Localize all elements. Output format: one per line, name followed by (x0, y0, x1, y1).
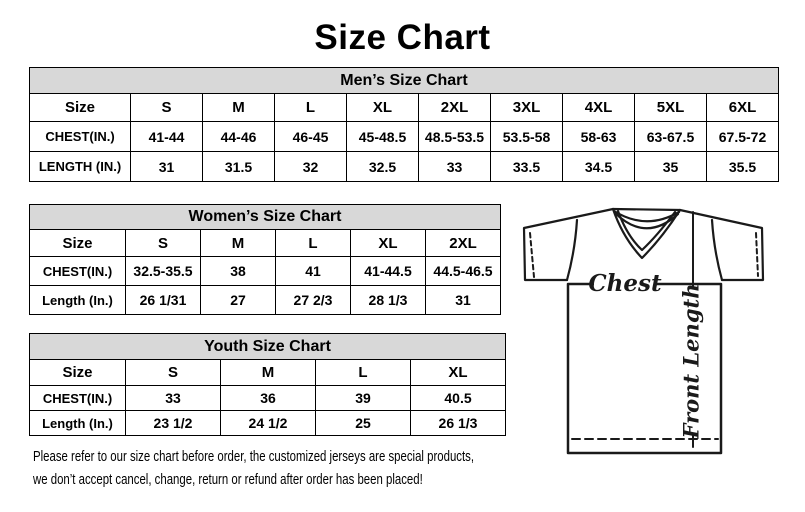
size-value: 27 (201, 286, 276, 315)
page-title: Size Chart (0, 18, 805, 58)
size-value: 53.5-58 (491, 122, 563, 152)
row-label: LENGTH (IN.) (30, 152, 131, 182)
size-value: 31 (131, 152, 203, 182)
column-header: Size (30, 94, 131, 122)
size-value: 40.5 (411, 386, 506, 411)
size-value: 36 (221, 386, 316, 411)
column-header: L (316, 360, 411, 386)
tshirt-measurement-diagram: Chest Front Length (511, 196, 803, 461)
row-label: CHEST(IN.) (30, 386, 126, 411)
size-value: 33 (419, 152, 491, 182)
row-label: Length (In.) (30, 286, 126, 315)
size-value: 58-63 (563, 122, 635, 152)
size-value: 41-44 (131, 122, 203, 152)
column-header: 4XL (563, 94, 635, 122)
size-chart-page: Size Chart Men’s Size ChartSizeSMLXL2XL3… (0, 0, 805, 512)
column-header: XL (411, 360, 506, 386)
front-length-label: Front Length (679, 284, 704, 440)
size-value: 32.5 (347, 152, 419, 182)
size-value: 24 1/2 (221, 411, 316, 436)
right-underarm-seam (712, 220, 722, 280)
column-header: L (276, 230, 351, 257)
size-value: 34.5 (563, 152, 635, 182)
row-label: CHEST(IN.) (30, 257, 126, 286)
size-value: 48.5-53.5 (419, 122, 491, 152)
size-value: 26 1/3 (411, 411, 506, 436)
right-cuff-stitch-dash (756, 233, 758, 276)
size-value: 35 (635, 152, 707, 182)
size-value: 27 2/3 (276, 286, 351, 315)
size-value: 44.5-46.5 (426, 257, 501, 286)
row-label: Length (In.) (30, 411, 126, 436)
column-header: XL (351, 230, 426, 257)
table-title: Youth Size Chart (30, 334, 506, 360)
size-value: 67.5-72 (707, 122, 779, 152)
table-title: Men’s Size Chart (30, 68, 779, 94)
column-header: Size (30, 230, 126, 257)
youth-size-table: Youth Size ChartSizeSMLXLCHEST(IN.)33363… (29, 333, 506, 436)
size-value: 45-48.5 (347, 122, 419, 152)
size-value: 41-44.5 (351, 257, 426, 286)
size-value: 39 (316, 386, 411, 411)
column-header: 5XL (635, 94, 707, 122)
column-header: M (221, 360, 316, 386)
size-value: 35.5 (707, 152, 779, 182)
mens-size-table: Men’s Size ChartSizeSMLXL2XL3XL4XL5XL6XL… (29, 67, 779, 182)
size-value: 41 (276, 257, 351, 286)
column-header: 2XL (419, 94, 491, 122)
disclaimer-line-1: Please refer to our size chart before or… (33, 445, 474, 468)
column-header: S (131, 94, 203, 122)
size-value: 33.5 (491, 152, 563, 182)
disclaimer-line-2: we don’t accept cancel, change, return o… (33, 468, 474, 491)
column-header: XL (347, 94, 419, 122)
column-header: 2XL (426, 230, 501, 257)
size-value: 28 1/3 (351, 286, 426, 315)
size-value: 31.5 (203, 152, 275, 182)
womens-size-table: Women’s Size ChartSizeSMLXL2XLCHEST(IN.)… (29, 204, 501, 315)
column-header: M (203, 94, 275, 122)
column-header: Size (30, 360, 126, 386)
size-value: 26 1/31 (126, 286, 201, 315)
disclaimer: Please refer to our size chart before or… (33, 445, 613, 491)
size-value: 31 (426, 286, 501, 315)
column-header: S (126, 360, 221, 386)
column-header: S (126, 230, 201, 257)
size-value: 63-67.5 (635, 122, 707, 152)
column-header: M (201, 230, 276, 257)
left-underarm-seam (567, 220, 577, 280)
column-header: 6XL (707, 94, 779, 122)
size-value: 32.5-35.5 (126, 257, 201, 286)
size-value: 23 1/2 (126, 411, 221, 436)
size-value: 25 (316, 411, 411, 436)
size-value: 46-45 (275, 122, 347, 152)
chest-label: Chest (588, 270, 662, 297)
size-value: 44-46 (203, 122, 275, 152)
size-value: 33 (126, 386, 221, 411)
left-cuff-stitch-dash (530, 233, 534, 277)
size-value: 32 (275, 152, 347, 182)
column-header: L (275, 94, 347, 122)
collar-top-line (613, 209, 680, 210)
table-title: Women’s Size Chart (30, 205, 501, 230)
row-label: CHEST(IN.) (30, 122, 131, 152)
size-value: 38 (201, 257, 276, 286)
column-header: 3XL (491, 94, 563, 122)
